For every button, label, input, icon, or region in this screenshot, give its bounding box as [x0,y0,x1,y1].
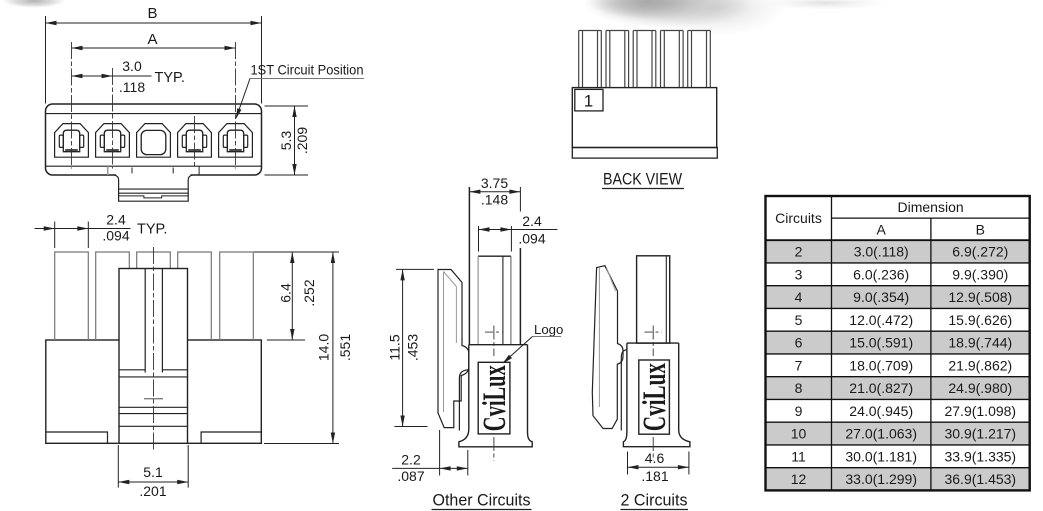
svg-text:Other Circuits: Other Circuits [433,492,531,510]
svg-text:27.9(1.098): 27.9(1.098) [944,403,1016,419]
svg-text:.148: .148 [481,192,508,208]
svg-text:4.6: 4.6 [645,450,665,466]
svg-text:A: A [877,221,887,237]
svg-text:21.0(.827): 21.0(.827) [849,380,913,396]
svg-text:2.4: 2.4 [106,212,126,228]
svg-text:.094: .094 [518,231,545,247]
svg-text:.209: .209 [294,127,310,154]
svg-text:10: 10 [791,426,807,442]
svg-text:21.9(.862): 21.9(.862) [948,357,1012,373]
svg-text:9.9(.390): 9.9(.390) [952,266,1008,282]
svg-text:12: 12 [791,471,807,487]
svg-text:18.9(.744): 18.9(.744) [948,335,1012,351]
svg-text:9.0(.354): 9.0(.354) [853,289,909,305]
svg-text:BACK VIEW: BACK VIEW [603,171,682,189]
svg-text:Logo: Logo [534,322,563,337]
svg-text:3.75: 3.75 [481,175,508,191]
svg-text:.094: .094 [102,228,129,244]
svg-text:.118: .118 [119,79,145,95]
svg-text:24.9(.980): 24.9(.980) [948,380,1012,396]
svg-text:18.0(.709): 18.0(.709) [849,357,913,373]
svg-text:TYP.: TYP. [155,70,185,86]
svg-text:8: 8 [795,380,803,396]
svg-text:2 Circuits: 2 Circuits [621,492,688,510]
svg-text:.252: .252 [301,279,317,306]
svg-text:.453: .453 [405,334,421,361]
svg-text:5: 5 [795,312,803,328]
svg-text:Circuits: Circuits [775,210,822,226]
svg-text:15.9(.626): 15.9(.626) [948,312,1012,328]
svg-text:12.0(.472): 12.0(.472) [849,312,913,328]
svg-text:27.0(1.063): 27.0(1.063) [845,426,917,442]
svg-text:30.9(1.217): 30.9(1.217) [944,426,1016,442]
svg-text:7: 7 [795,357,803,373]
svg-text:30.0(1.181): 30.0(1.181) [845,448,917,464]
svg-text:33.9(1.335): 33.9(1.335) [944,448,1016,464]
svg-text:15.0(.591): 15.0(.591) [849,335,913,351]
svg-text:A: A [147,31,157,48]
svg-text:14.0: 14.0 [316,334,332,361]
svg-text:12.9(.508): 12.9(.508) [948,289,1012,305]
svg-text:6.4: 6.4 [278,283,294,303]
svg-text:5.1: 5.1 [143,464,163,480]
svg-text:5.3: 5.3 [278,131,294,151]
svg-text:.181: .181 [641,468,668,484]
svg-text:33.0(1.299): 33.0(1.299) [845,471,917,487]
svg-text:6: 6 [795,335,803,351]
svg-text:.551: .551 [337,334,353,361]
svg-text:2.4: 2.4 [522,213,542,229]
svg-text:3.0(.118): 3.0(.118) [854,244,909,260]
svg-text:TYP.: TYP. [137,222,167,238]
svg-text:B: B [147,5,157,22]
svg-text:CviLux: CviLux [477,365,513,431]
svg-text:9: 9 [795,403,803,419]
svg-text:B: B [976,221,985,237]
svg-text:Dimension: Dimension [898,199,964,215]
svg-text:2: 2 [795,244,803,260]
svg-text:6.9(.272): 6.9(.272) [952,244,1008,260]
svg-text:1: 1 [584,92,593,111]
svg-text:3: 3 [795,266,803,282]
svg-text:1ST Circuit Position: 1ST Circuit Position [251,63,364,78]
svg-text:.087: .087 [397,468,424,484]
svg-text:2.2: 2.2 [401,452,421,468]
svg-text:CviLux: CviLux [637,363,673,431]
svg-text:36.9(1.453): 36.9(1.453) [944,471,1016,487]
svg-text:11.5: 11.5 [387,334,403,360]
svg-text:4: 4 [795,289,803,305]
svg-text:6.0(.236): 6.0(.236) [853,266,909,282]
svg-text:3.0: 3.0 [122,58,142,74]
svg-text:.201: .201 [139,483,166,499]
svg-text:11: 11 [791,448,806,464]
svg-text:24.0(.945): 24.0(.945) [849,403,913,419]
